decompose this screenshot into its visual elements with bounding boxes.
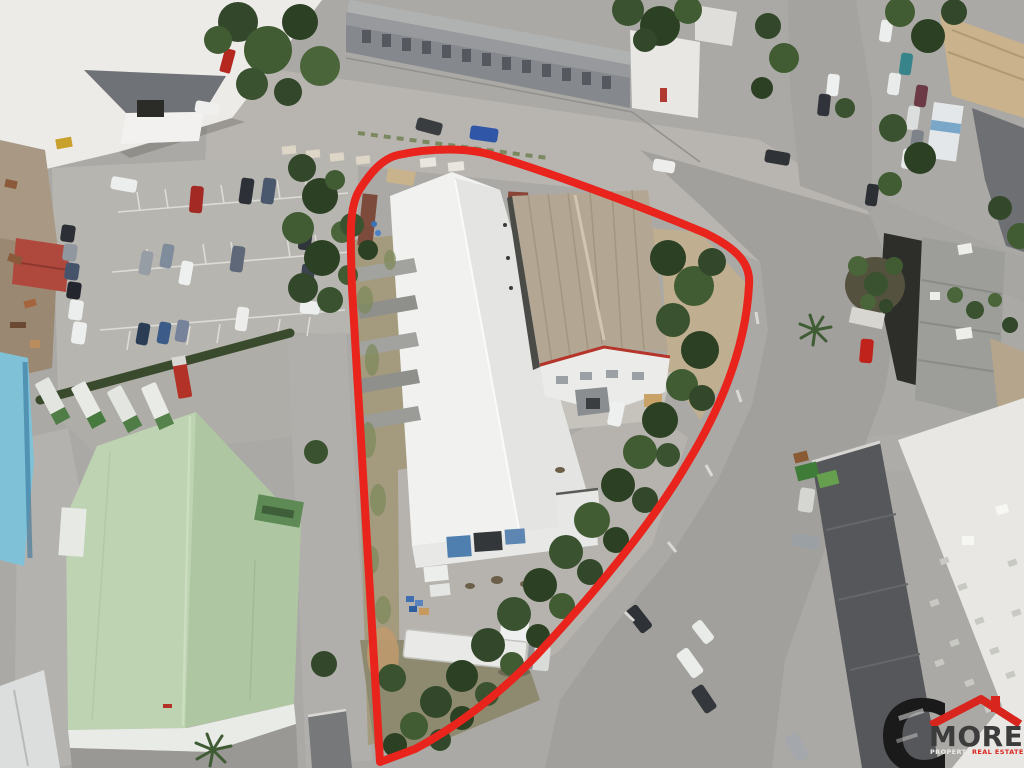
red-door bbox=[660, 88, 667, 102]
car bbox=[60, 224, 76, 243]
dark-canopy bbox=[308, 710, 352, 768]
logo-chimney-icon bbox=[991, 696, 1000, 712]
roof-dot bbox=[503, 223, 507, 227]
doorway bbox=[137, 100, 164, 117]
scrap-item bbox=[10, 322, 26, 328]
van bbox=[68, 299, 85, 321]
roof-unit bbox=[955, 327, 972, 340]
container-box bbox=[423, 565, 448, 582]
blue-barrel bbox=[375, 230, 381, 236]
white-container bbox=[58, 507, 86, 557]
car-red bbox=[189, 186, 204, 214]
blue-door bbox=[446, 535, 471, 558]
container-box bbox=[429, 583, 450, 597]
car bbox=[64, 262, 80, 281]
aerial-photo: C MORE PROPERTIES REAL ESTATES bbox=[0, 0, 1024, 768]
scrap-item bbox=[30, 340, 40, 348]
car bbox=[826, 73, 840, 96]
roof-dot bbox=[506, 256, 510, 260]
open-doorway bbox=[473, 531, 502, 552]
blue-barrel bbox=[371, 221, 377, 227]
logo-tagline-real-estates: REAL ESTATES bbox=[972, 748, 1024, 756]
car bbox=[66, 281, 82, 300]
roof-unit bbox=[930, 292, 940, 300]
roof-unit bbox=[962, 536, 974, 545]
car-red bbox=[859, 338, 874, 363]
car bbox=[817, 93, 831, 116]
aerial-scene: C MORE PROPERTIES REAL ESTATES bbox=[0, 0, 1024, 768]
roof-dot bbox=[509, 286, 513, 290]
blue-panel bbox=[505, 528, 526, 544]
doorway bbox=[586, 398, 600, 409]
logo-mark bbox=[163, 704, 172, 708]
car bbox=[62, 243, 78, 262]
north-road bbox=[788, 0, 872, 212]
